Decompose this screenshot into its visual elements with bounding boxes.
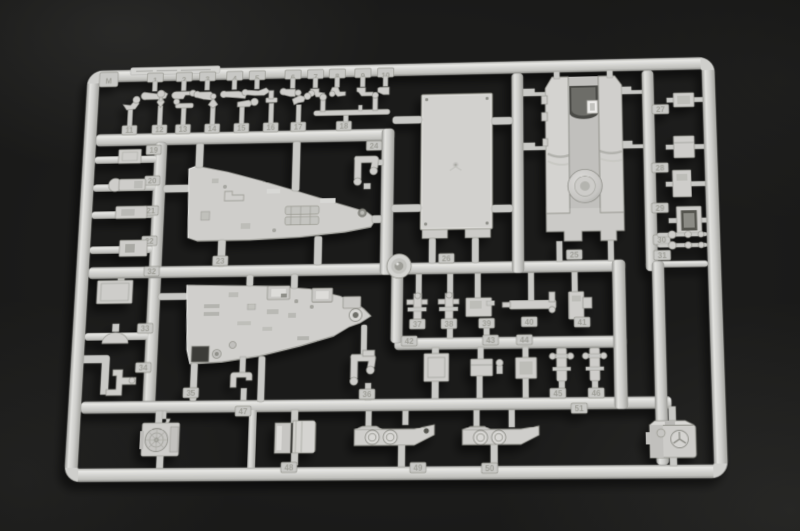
svg-text:48: 48 <box>284 463 293 473</box>
svg-text:21: 21 <box>146 206 155 215</box>
svg-text:47: 47 <box>238 406 247 416</box>
svg-text:15: 15 <box>237 123 246 132</box>
svg-text:23: 23 <box>216 256 225 266</box>
svg-text:34: 34 <box>139 363 148 373</box>
svg-text:28: 28 <box>656 163 665 173</box>
svg-text:35: 35 <box>186 388 195 398</box>
svg-text:45: 45 <box>553 389 562 399</box>
svg-text:39: 39 <box>482 319 491 329</box>
svg-text:41: 41 <box>578 317 587 327</box>
svg-text:51: 51 <box>575 403 584 413</box>
svg-text:37: 37 <box>413 319 422 329</box>
svg-text:27: 27 <box>656 105 665 114</box>
svg-text:50: 50 <box>485 463 494 473</box>
svg-text:14: 14 <box>208 124 217 133</box>
svg-text:26: 26 <box>442 254 451 264</box>
svg-text:17: 17 <box>294 122 303 131</box>
svg-text:43: 43 <box>486 335 495 345</box>
svg-text:40: 40 <box>525 317 534 327</box>
svg-text:11: 11 <box>125 126 133 135</box>
svg-text:20: 20 <box>148 176 157 185</box>
svg-text:18: 18 <box>340 121 349 130</box>
svg-text:32: 32 <box>147 267 156 277</box>
svg-text:44: 44 <box>520 335 529 345</box>
svg-text:31: 31 <box>658 251 667 261</box>
svg-text:46: 46 <box>592 388 601 398</box>
svg-text:38: 38 <box>445 319 454 329</box>
svg-text:36: 36 <box>362 389 371 399</box>
svg-text:12: 12 <box>155 125 164 134</box>
svg-text:19: 19 <box>149 145 158 154</box>
svg-text:42: 42 <box>405 336 414 346</box>
svg-text:29: 29 <box>655 203 664 213</box>
svg-text:M: M <box>105 77 112 86</box>
svg-text:25: 25 <box>570 250 579 260</box>
svg-text:16: 16 <box>266 123 275 132</box>
svg-text:33: 33 <box>141 324 150 334</box>
svg-text:13: 13 <box>178 125 187 134</box>
svg-text:49: 49 <box>413 463 422 473</box>
svg-text:24: 24 <box>370 141 379 150</box>
